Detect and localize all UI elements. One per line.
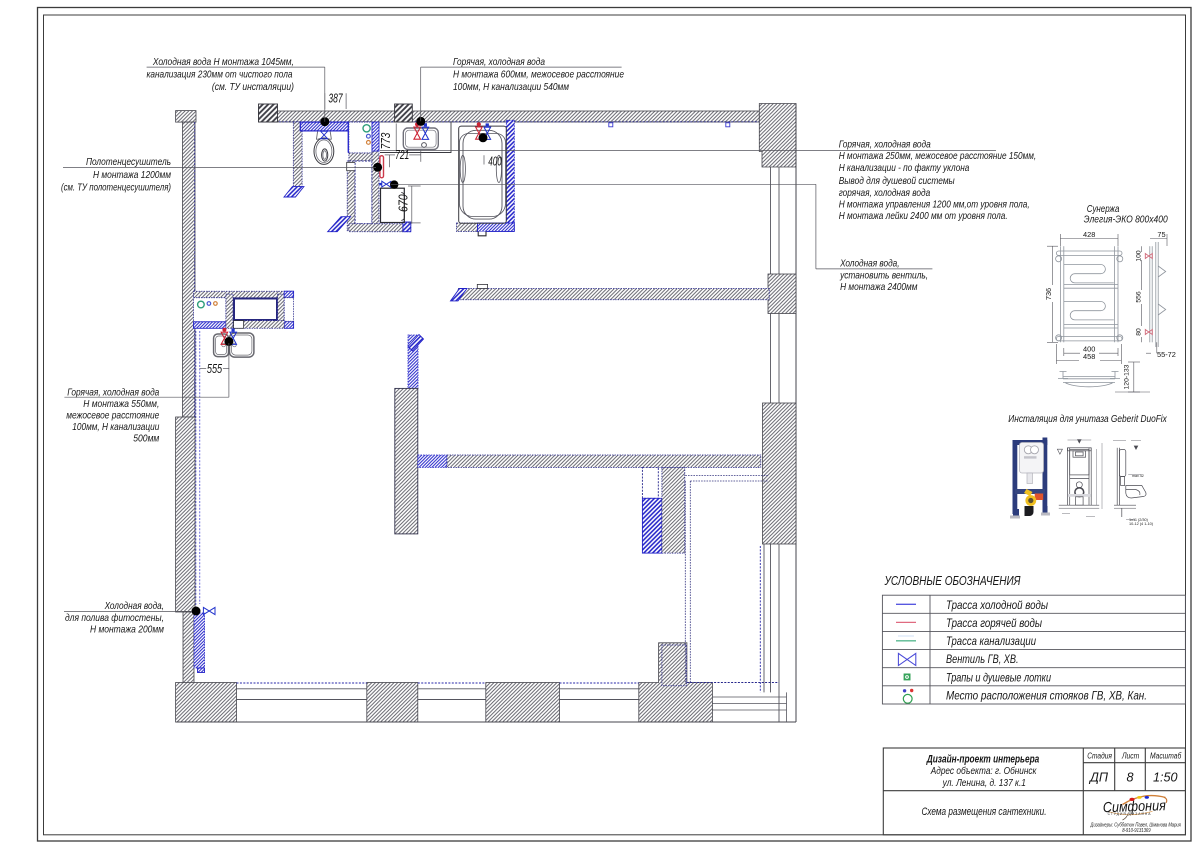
svg-text:Масштаб: Масштаб [1150, 752, 1182, 761]
svg-text:Вентиль ГВ, ХВ.: Вентиль ГВ, ХВ. [946, 652, 1019, 666]
svg-text:Схема размещения сантехники.: Схема размещения сантехники. [922, 806, 1047, 818]
svg-text:428: 428 [1083, 230, 1095, 239]
svg-text:400: 400 [488, 153, 502, 168]
svg-text:75: 75 [1157, 230, 1165, 239]
svg-text:8: 8 [1126, 771, 1133, 785]
svg-text:Н монтажа 1200мм: Н монтажа 1200мм [93, 170, 171, 181]
svg-text:горячая, холодная вода: горячая, холодная вода [839, 188, 931, 199]
svg-text:721: 721 [395, 147, 409, 162]
svg-text:Н монтажа лейки 2400 мм от уро: Н монтажа лейки 2400 мм от уровня пола. [839, 211, 1008, 222]
svg-text:387: 387 [328, 90, 343, 105]
svg-text:100мм, Н канализации 540мм: 100мм, Н канализации 540мм [453, 82, 569, 93]
svg-text:ул. Ленина, д. 137 к.1: ул. Ленина, д. 137 к.1 [942, 778, 1026, 789]
svg-text:10-12 (4 1-10): 10-12 (4 1-10) [1129, 522, 1154, 526]
svg-text:773: 773 [378, 132, 393, 149]
svg-text:(см. ТУ инсталяции): (см. ТУ инсталяции) [212, 82, 294, 93]
svg-text:Полотенцесушитель: Полотенцесушитель [86, 157, 171, 168]
svg-text:556: 556 [1135, 291, 1142, 303]
svg-text:УСЛОВНЫЕ ОБОЗНАЧЕНИЯ: УСЛОВНЫЕ ОБОЗНАЧЕНИЯ [884, 573, 1021, 588]
svg-text:670: 670 [396, 194, 411, 212]
svg-text:Н канализации - по факту уклон: Н канализации - по факту уклона [839, 162, 970, 174]
svg-text:80: 80 [1135, 328, 1142, 336]
svg-text:канализация 230мм от чистого п: канализация 230мм от чистого пола [147, 70, 293, 81]
svg-text:Н монтажа 600мм, межосевое рас: Н монтажа 600мм, межосевое расстояние [453, 70, 624, 81]
svg-text:для полива фитостены,: для полива фитостены, [65, 612, 164, 624]
svg-text:Холодная вода Н монтажа 1045мм: Холодная вода Н монтажа 1045мм, [152, 57, 294, 68]
svg-text:Н монтажа управления 1200 мм,о: Н монтажа управления 1200 мм,от уровня п… [839, 200, 1030, 211]
svg-text:Сунержа: Сунержа [1087, 204, 1120, 215]
svg-text:Вывод для душевой системы: Вывод для душевой системы [839, 176, 955, 187]
svg-text:500мм: 500мм [133, 434, 159, 445]
svg-text:max 42: max 42 [1132, 474, 1144, 478]
svg-text:Место расположения стояков ГВ,: Место расположения стояков ГВ, ХВ, Кан. [946, 688, 1147, 702]
svg-text:Лист: Лист [1121, 752, 1139, 761]
svg-text:установить вентиль,: установить вентиль, [839, 270, 928, 281]
svg-text:8-910-9131369: 8-910-9131369 [1122, 828, 1150, 834]
svg-text:458: 458 [1083, 352, 1095, 361]
svg-text:Н монтажа 250мм, межосевое рас: Н монтажа 250мм, межосевое расстояние 15… [839, 151, 1036, 162]
svg-text:Горячая, холодная вода: Горячая, холодная вода [453, 57, 545, 68]
svg-text:1:50: 1:50 [1153, 771, 1178, 785]
svg-text:100мм, Н канализации: 100мм, Н канализации [72, 422, 159, 433]
svg-text:Трасса холодной воды: Трасса холодной воды [946, 598, 1048, 612]
svg-text:Трасса канализации: Трасса канализации [946, 634, 1036, 648]
svg-text:СТУДИЯ ДИЗАЙНА: СТУДИЯ ДИЗАЙНА [1108, 812, 1152, 816]
svg-text:Горячая, холодная вода: Горячая, холодная вода [67, 387, 159, 398]
svg-text:555: 555 [207, 361, 223, 376]
svg-text:100: 100 [1135, 250, 1142, 262]
svg-text:Н монтажа 550мм,: Н монтажа 550мм, [83, 399, 159, 410]
svg-text:Горячая, холодная вода: Горячая, холодная вода [839, 140, 931, 151]
svg-text:55-72: 55-72 [1157, 350, 1176, 359]
svg-text:Элегия-ЭКО 800х400: Элегия-ЭКО 800х400 [1084, 215, 1168, 226]
svg-text:Холодная вода,: Холодная вода, [839, 259, 899, 270]
svg-text:Холодная вода,: Холодная вода, [104, 601, 164, 612]
svg-text:(см. ТУ полотенцесушителя): (см. ТУ полотенцесушителя) [61, 182, 171, 193]
svg-text:Н монтажа 2400мм: Н монтажа 2400мм [840, 282, 917, 293]
svg-text:Трапы и душевые лотки: Трапы и душевые лотки [946, 670, 1051, 684]
svg-text:120-133: 120-133 [1124, 364, 1131, 389]
svg-text:Адрес объекта: г. Обнинск: Адрес объекта: г. Обнинск [930, 765, 1037, 777]
svg-text:Инсталяция для унитаза Geberit: Инсталяция для унитаза Geberit DuoFix [1008, 414, 1167, 425]
svg-text:Н монтажа 200мм: Н монтажа 200мм [90, 624, 164, 635]
svg-text:Стадия: Стадия [1087, 752, 1112, 761]
svg-text:736: 736 [1044, 288, 1053, 300]
svg-text:Трасса горячей воды: Трасса горячей воды [946, 616, 1042, 630]
svg-text:Дизайн-проект интерьера: Дизайн-проект интерьера [926, 753, 1039, 765]
svg-text:ДП: ДП [1088, 771, 1109, 785]
svg-text:межосевое расстояние: межосевое расстояние [66, 411, 159, 422]
